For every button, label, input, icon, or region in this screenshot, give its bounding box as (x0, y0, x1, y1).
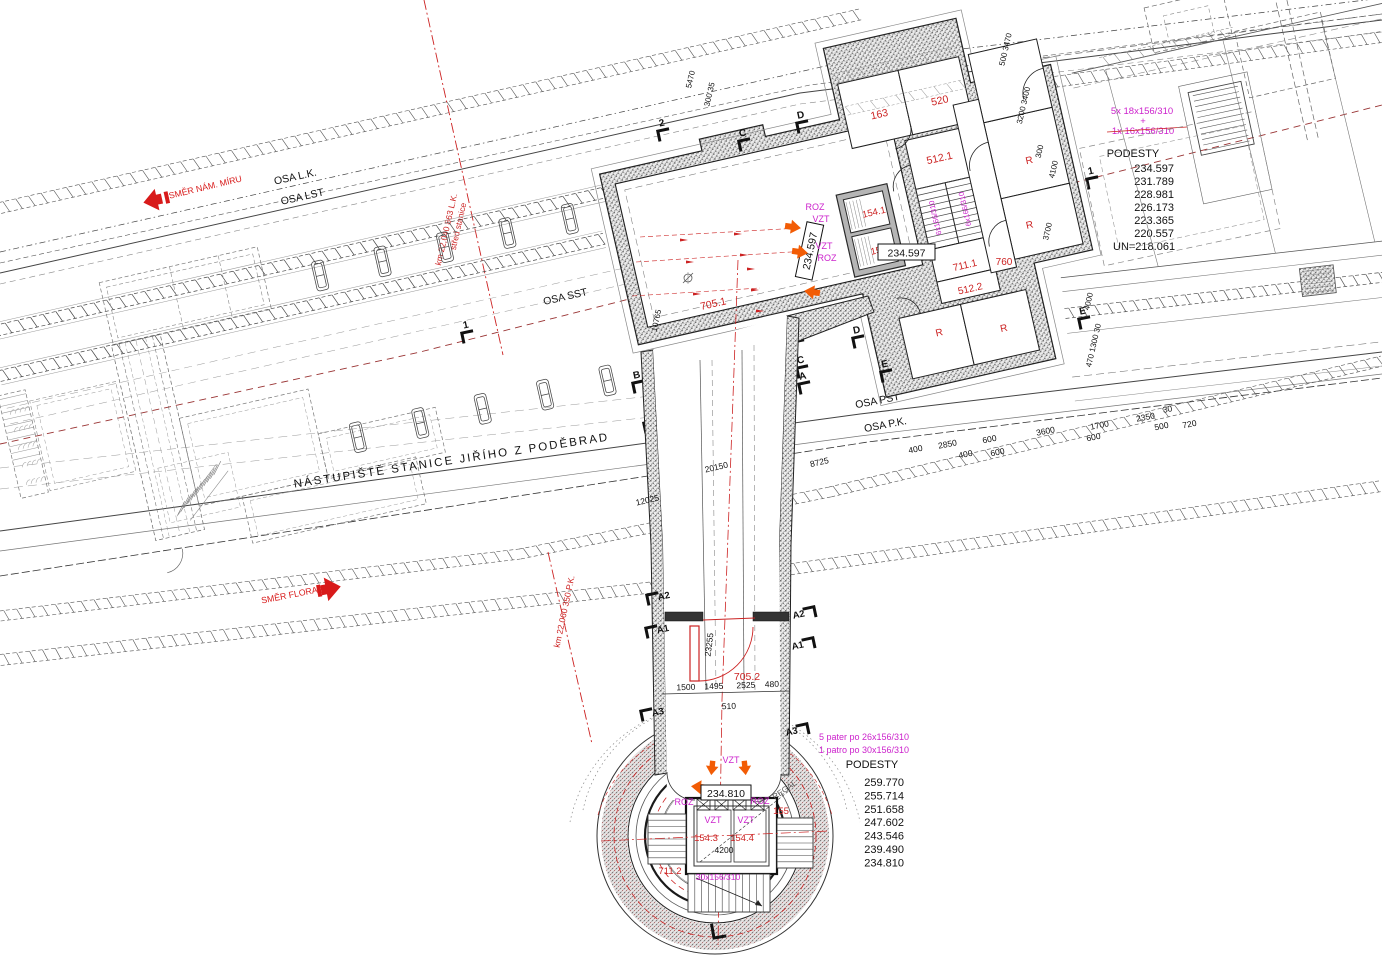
svg-text:ROZ: ROZ (818, 253, 838, 263)
svg-text:234.597: 234.597 (1134, 163, 1174, 175)
svg-text:4200: 4200 (715, 845, 734, 855)
svg-text:ROZ: ROZ (675, 797, 695, 807)
svg-text:VZT: VZT (705, 815, 723, 825)
svg-text:711.2: 711.2 (658, 866, 681, 877)
svg-text:510: 510 (722, 701, 737, 711)
svg-text:ROZ: ROZ (751, 796, 771, 806)
svg-text:1 patro po 30x156/310: 1 patro po 30x156/310 (819, 745, 909, 755)
svg-text:259.770: 259.770 (864, 777, 904, 789)
svg-text:5 pater po 26x156/310: 5 pater po 26x156/310 (819, 732, 909, 742)
svg-text:231.789: 231.789 (1134, 176, 1174, 188)
svg-text:30x156/310: 30x156/310 (696, 872, 741, 882)
svg-text:234.810: 234.810 (707, 788, 745, 800)
svg-text:234.597: 234.597 (888, 248, 926, 260)
svg-text:PODESTY: PODESTY (1107, 148, 1160, 160)
svg-text:234.810: 234.810 (864, 857, 904, 869)
svg-text:1495: 1495 (704, 681, 724, 692)
svg-text:226.173: 226.173 (1134, 202, 1174, 214)
svg-text:255.714: 255.714 (864, 790, 904, 802)
svg-text:247.602: 247.602 (864, 817, 904, 829)
svg-text:PODESTY: PODESTY (846, 759, 899, 771)
svg-text:1500: 1500 (676, 682, 696, 693)
svg-text:VZT: VZT (816, 241, 834, 251)
svg-text:480: 480 (765, 679, 780, 689)
svg-text:VZT: VZT (723, 755, 741, 765)
svg-text:VZT: VZT (813, 214, 831, 224)
svg-text:UN=218.061: UN=218.061 (1113, 241, 1175, 253)
svg-text:223.365: 223.365 (1134, 215, 1174, 227)
svg-text:154.3: 154.3 (694, 833, 718, 844)
svg-text:760: 760 (996, 257, 1013, 268)
svg-text:243.546: 243.546 (864, 831, 904, 843)
svg-text:251.658: 251.658 (864, 804, 904, 816)
svg-text:239.490: 239.490 (864, 844, 904, 856)
svg-text:220.557: 220.557 (1134, 228, 1174, 240)
svg-text:2525: 2525 (736, 680, 756, 691)
svg-text:155: 155 (773, 806, 789, 817)
svg-text:ROZ: ROZ (806, 202, 826, 212)
